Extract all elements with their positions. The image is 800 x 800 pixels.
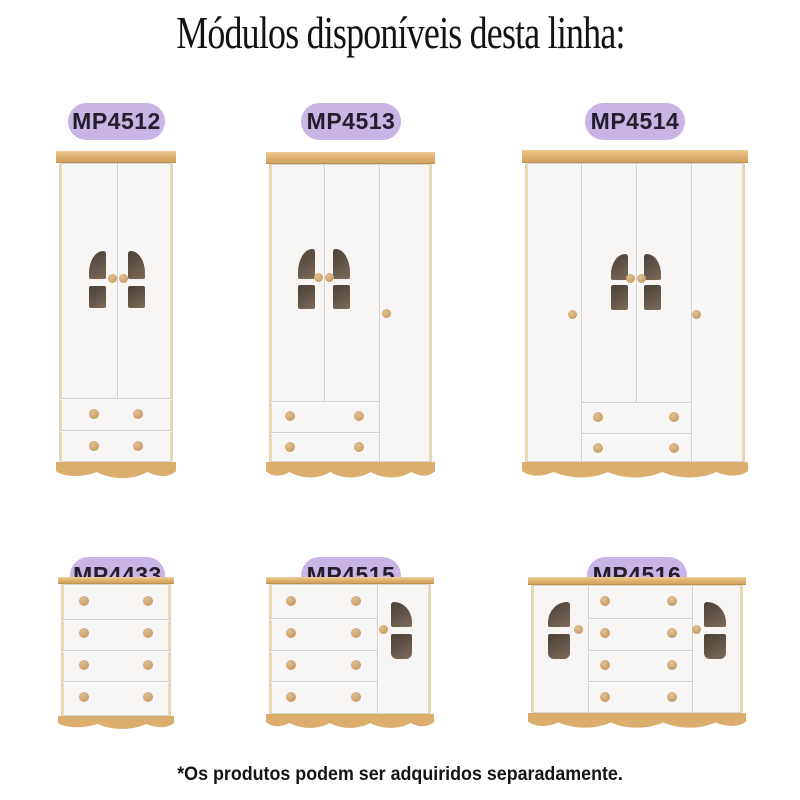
- door-window: [128, 286, 145, 308]
- knob: [351, 692, 361, 702]
- knob: [667, 596, 677, 606]
- knob: [600, 692, 610, 702]
- knob: [600, 628, 610, 638]
- knob: [143, 692, 153, 702]
- knob: [325, 273, 334, 282]
- module-illustration-mp4516: [528, 577, 746, 735]
- catalog-image: Módulos disponíveis desta linha: MP4512 …: [0, 0, 800, 800]
- knob: [354, 442, 364, 452]
- door-window: [611, 285, 628, 310]
- drawer-divider: [270, 432, 379, 433]
- knob: [89, 409, 99, 419]
- drawer-divider: [581, 433, 691, 434]
- knob: [286, 628, 296, 638]
- cabinet-body: [59, 163, 173, 462]
- knob: [669, 412, 679, 422]
- panel-line: [270, 401, 379, 402]
- knob: [379, 625, 388, 634]
- door-window: [644, 254, 661, 280]
- knob: [669, 443, 679, 453]
- drawer-divider: [60, 430, 172, 431]
- drawer-divider: [270, 650, 377, 651]
- knob: [286, 596, 296, 606]
- drawer-divider: [62, 650, 170, 651]
- base-skirt: [58, 716, 174, 732]
- knob: [667, 692, 677, 702]
- drawer-divider: [62, 681, 170, 682]
- wood-top: [528, 577, 746, 585]
- knob: [133, 441, 143, 451]
- door-window: [548, 602, 570, 627]
- cabinet-body: [269, 164, 432, 462]
- module-illustration-mp4513: [266, 152, 435, 484]
- knob: [692, 310, 701, 319]
- knob: [593, 412, 603, 422]
- base-skirt: [266, 462, 435, 482]
- door-divider: [379, 165, 380, 461]
- door-window: [333, 285, 350, 309]
- knob: [568, 310, 577, 319]
- knob: [314, 273, 323, 282]
- drawer-divider: [588, 618, 692, 619]
- module-badge-mp4514: MP4514: [585, 103, 685, 140]
- cabinet-body: [525, 163, 745, 462]
- base-skirt: [56, 462, 176, 482]
- module-illustration-mp4433: [58, 577, 174, 735]
- knob: [143, 660, 153, 670]
- drawer-divider: [270, 681, 377, 682]
- panel-line: [60, 398, 172, 399]
- knob: [133, 409, 143, 419]
- door-window: [548, 634, 570, 659]
- panel-line: [581, 402, 691, 403]
- module-illustration-mp4514: [522, 150, 748, 484]
- door-divider: [581, 164, 582, 461]
- knob: [286, 692, 296, 702]
- door-window: [89, 286, 106, 308]
- knob: [667, 660, 677, 670]
- base-skirt: [266, 714, 434, 732]
- door-divider: [377, 585, 378, 713]
- door-window: [704, 602, 726, 627]
- wood-top: [522, 150, 748, 163]
- knob: [79, 660, 89, 670]
- wood-top: [56, 151, 176, 163]
- knob: [79, 596, 89, 606]
- module-illustration-mp4515: [266, 577, 434, 735]
- knob: [351, 628, 361, 638]
- drawer-divider: [270, 618, 377, 619]
- door-window: [704, 634, 726, 659]
- door-window: [298, 285, 315, 309]
- door-window: [333, 249, 350, 279]
- cabinet-body: [269, 584, 431, 714]
- door-window: [128, 251, 145, 279]
- base-skirt: [528, 713, 746, 732]
- knob: [351, 596, 361, 606]
- knob: [667, 628, 677, 638]
- knob: [89, 441, 99, 451]
- knob: [600, 596, 610, 606]
- footnote: *Os produtos podem ser adquiridos separa…: [0, 764, 800, 786]
- knob: [382, 309, 391, 318]
- module-badge-mp4513: MP4513: [301, 103, 401, 140]
- door-divider: [636, 164, 637, 402]
- cabinet-body: [61, 584, 171, 716]
- knob: [108, 274, 117, 283]
- knob: [285, 411, 295, 421]
- knob: [637, 274, 646, 283]
- knob: [626, 274, 635, 283]
- door-window: [391, 602, 412, 627]
- door-divider: [692, 586, 693, 712]
- wood-top: [58, 577, 174, 584]
- door-window: [89, 251, 106, 279]
- module-badge-mp4512: MP4512: [68, 103, 165, 140]
- knob: [593, 443, 603, 453]
- drawer-divider: [588, 650, 692, 651]
- base-skirt: [522, 462, 748, 482]
- knob: [600, 660, 610, 670]
- door-divider: [324, 165, 325, 401]
- knob: [143, 628, 153, 638]
- knob: [574, 625, 583, 634]
- wood-top: [266, 577, 434, 584]
- knob: [285, 442, 295, 452]
- knob: [286, 660, 296, 670]
- knob: [351, 660, 361, 670]
- knob: [79, 692, 89, 702]
- drawer-divider: [588, 681, 692, 682]
- module-illustration-mp4512: [56, 151, 176, 485]
- door-divider: [588, 586, 589, 712]
- page-title: Módulos disponíveis desta linha:: [0, 6, 800, 59]
- cabinet-body: [531, 585, 743, 713]
- door-window: [644, 285, 661, 310]
- knob: [692, 625, 701, 634]
- knob: [79, 628, 89, 638]
- door-window: [298, 249, 315, 279]
- knob: [143, 596, 153, 606]
- door-window: [391, 634, 412, 659]
- drawer-divider: [62, 619, 170, 620]
- knob: [119, 274, 128, 283]
- wood-top: [266, 152, 435, 164]
- door-divider: [117, 164, 118, 398]
- knob: [354, 411, 364, 421]
